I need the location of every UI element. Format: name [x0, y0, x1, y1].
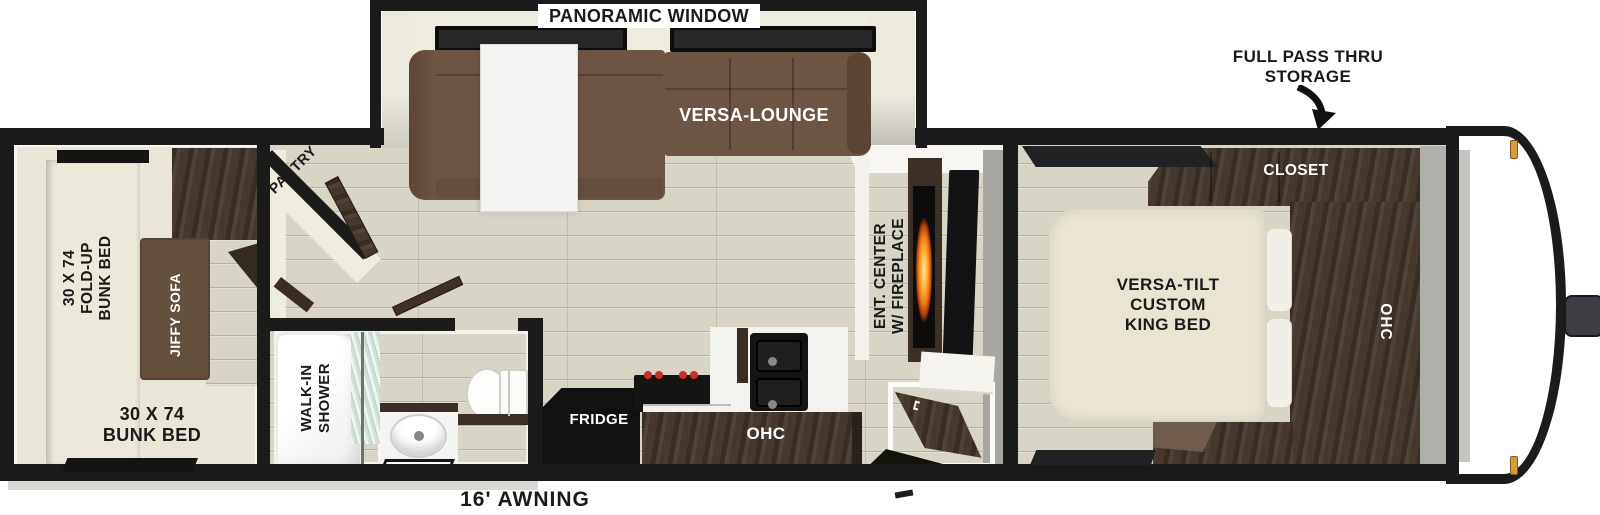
wall-bathroom-right [528, 318, 543, 481]
wall-bottom [0, 464, 1460, 481]
king-bed-label-line1: VERSA-TILT [1068, 275, 1268, 295]
fold-up-bunk-label-line2: FOLD-UP [79, 242, 97, 314]
king-bed-label: VERSA-TILT CUSTOM KING BED [1068, 275, 1268, 335]
bedroom-window-top [1022, 146, 1218, 167]
kitchen-sink-basin-top [756, 340, 802, 372]
ent-center-ledge [919, 351, 995, 394]
closet-groove [1210, 152, 1212, 202]
fold-up-bunk-label: 30 X 74 FOLD-UP BUNK BED [62, 223, 114, 333]
fridge-label: FRIDGE [559, 411, 639, 429]
wall-rear [0, 128, 14, 481]
clearance-light-top [1510, 140, 1518, 159]
wall-bunk-room [257, 128, 270, 481]
walk-in-shower-label: WALK-IN SHOWER [299, 353, 333, 443]
fold-up-bunk-label-line1: 30 X 74 [61, 250, 79, 306]
walk-in-shower-label-line2: SHOWER [316, 363, 334, 433]
walk-in-shower-label-line1: WALK-IN [298, 365, 316, 432]
bunk-bed-label: 30 X 74 BUNK BED [82, 404, 222, 446]
kitchen-faucet [768, 357, 777, 366]
wall-top-front [915, 128, 1460, 145]
ent-center-label: ENT. CENTER W/ FIREPLACE [870, 211, 910, 341]
stove-knob [679, 371, 687, 379]
kitchen-sink-basin-bottom [756, 378, 802, 407]
bunk-bed-label-line2: BUNK BED [82, 425, 222, 446]
kitchen-ohc-label: OHC [726, 424, 806, 444]
stove-knob [644, 371, 652, 379]
ent-center-label-line2: W/ FIREPLACE [890, 218, 908, 334]
shower-door-rail [361, 332, 364, 478]
kitchen-counter-divider [737, 328, 748, 383]
bathroom-faucet [414, 431, 424, 441]
toilet-tank-seam [508, 371, 510, 416]
fridge [543, 388, 640, 470]
kitchen-faucet [768, 400, 777, 409]
bunk-window-top [57, 150, 149, 163]
full-pass-thru-label: FULL PASS THRU STORAGE [1208, 47, 1408, 87]
fireplace-flame [915, 214, 933, 326]
panoramic-window-label: PANORAMIC WINDOW [538, 6, 760, 27]
hitch-coupler-head [1564, 295, 1600, 337]
shower-glass-door [351, 332, 380, 444]
bedroom-ohc-label: OHC [1376, 292, 1394, 352]
bunk-wardrobe [172, 148, 259, 240]
ent-center-side-panel [855, 150, 869, 360]
awning-arm [895, 489, 914, 498]
king-bed-label-line3: KING BED [1068, 315, 1268, 335]
ent-center-label-line1: ENT. CENTER [872, 223, 890, 329]
full-pass-thru-label-line1: FULL PASS THRU [1208, 47, 1408, 67]
clearance-light-bottom [1510, 456, 1518, 475]
bunk-window-bottom [62, 458, 198, 472]
travel-trailer-floorplan: VERSA-LOUNGE JIFFY SOFA 30 X 74 FOLD-UP … [0, 0, 1600, 515]
jiffy-sofa-label: JIFFY SOFA [167, 260, 183, 370]
stove-knob [655, 371, 663, 379]
bedroom-ohc [1290, 202, 1420, 467]
storage-arrow-icon [1292, 85, 1340, 131]
king-bed-label-line2: CUSTOM [1068, 295, 1268, 315]
fold-up-bunk-label-line3: BUNK BED [97, 236, 115, 321]
bed-pillow [1266, 318, 1292, 408]
toilet-counter-edge [458, 414, 529, 425]
bunk-bed-label-line1: 30 X 74 [82, 404, 222, 425]
wall-top-rear [0, 128, 384, 145]
front-cap-wall-face [1459, 150, 1470, 462]
closet-label: CLOSET [1226, 162, 1366, 180]
toilet-tank [499, 369, 528, 418]
wall-bedroom-partition [1003, 140, 1018, 481]
wall-bathroom-top-left [262, 318, 455, 331]
bed-pillow [1266, 228, 1292, 312]
kitchen-ohc-end [852, 412, 862, 470]
bedroom-window-bottom [1030, 450, 1156, 465]
stove-knob [690, 371, 698, 379]
awning-label: 16' AWNING [405, 488, 645, 513]
